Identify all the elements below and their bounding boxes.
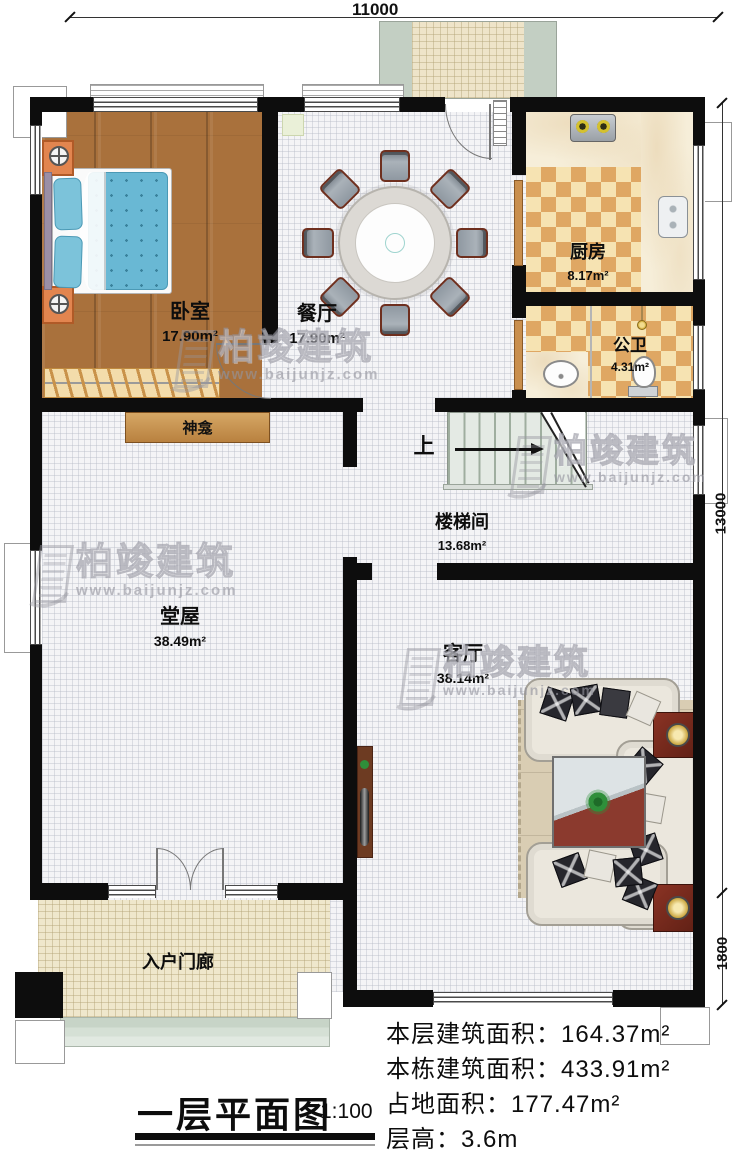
wall <box>512 292 705 306</box>
sofa-pillow <box>613 857 644 888</box>
ceiling-lamp-icon <box>641 306 643 321</box>
right-dimension-line <box>722 103 723 1005</box>
kitchen-window <box>693 145 705 280</box>
tv-icon <box>360 788 369 846</box>
right-dimension-label-1800: 1800 <box>714 937 731 970</box>
table-lamp-icon <box>666 896 690 920</box>
living-label: 客厅38.14m² <box>437 637 489 689</box>
dining-chair <box>380 150 410 182</box>
dining-label: 餐厅17.90m² <box>289 297 345 349</box>
wall <box>30 195 42 550</box>
wardrobe <box>44 368 220 398</box>
porch-column <box>15 972 63 1018</box>
shrine-console: 神龛 <box>125 412 270 443</box>
plan-scale: 1:100 <box>320 1100 373 1124</box>
porch-sill <box>297 972 332 1019</box>
entry-mat <box>282 114 304 136</box>
top-dimension-label: 11000 <box>352 0 398 20</box>
porch-sill <box>15 1020 65 1064</box>
dining-chair <box>456 228 488 258</box>
dining-window <box>304 97 400 112</box>
wall <box>400 97 445 112</box>
wall <box>693 97 705 145</box>
wall <box>437 563 705 580</box>
entry-door-leaf <box>156 848 158 890</box>
shrine-label: 神龛 <box>182 417 212 438</box>
sofa-pillow <box>583 849 616 882</box>
wall <box>30 883 108 900</box>
bathroom-divider <box>590 306 592 398</box>
rear-door-track <box>493 100 507 146</box>
wall <box>512 97 526 175</box>
wall <box>512 306 526 318</box>
dining-chair <box>302 228 334 258</box>
stat-building-area: 本栋建筑面积：433.91m² <box>386 1049 670 1084</box>
bed-sheet-fold <box>80 172 106 290</box>
window-sill <box>4 543 33 653</box>
right-dimension-label-13000: 13000 <box>712 493 729 535</box>
ceiling-lamp-icon <box>637 320 647 330</box>
plant-icon <box>584 788 612 816</box>
stair-landing-edge <box>443 484 593 490</box>
title-underline-thin <box>135 1144 375 1146</box>
entry-steps <box>60 1017 330 1047</box>
wall <box>435 398 705 412</box>
wall <box>343 398 357 467</box>
bed-headboard <box>44 172 52 290</box>
title-underline-thick <box>135 1133 375 1140</box>
bedroom-window <box>93 97 258 112</box>
plan-title: 一层平面图 <box>137 1086 332 1138</box>
hall-label: 堂屋38.49m² <box>154 600 206 652</box>
entry-porch-label: 入户门廊 <box>142 948 214 974</box>
wall <box>613 990 705 1007</box>
rear-door-leaf <box>489 104 491 160</box>
wall <box>510 97 705 112</box>
hall-side-window <box>30 550 42 645</box>
dining-chair <box>380 304 410 336</box>
stairwell-label: 楼梯间13.68m² <box>435 508 489 555</box>
bathroom-door-leaf <box>514 320 523 390</box>
stat-footprint-area: 占地面积：177.47m² <box>386 1084 620 1119</box>
burner-icon <box>597 120 610 133</box>
wall <box>343 557 357 1007</box>
bedroom-side-window <box>30 125 42 195</box>
floor-plan: 11000 13000 1800 <box>0 0 750 1150</box>
table-lamp-icon <box>666 723 690 747</box>
stairwell-window <box>693 425 705 495</box>
rear-porch-floor <box>412 22 524 98</box>
bathroom-label: 公卫4.31m² <box>611 331 649 376</box>
kitchen-label: 厨房8.17m² <box>567 238 608 285</box>
pillow <box>53 236 83 289</box>
wall <box>30 97 42 125</box>
stat-floor-height: 层高：3.6m <box>386 1119 518 1150</box>
wall <box>357 563 372 580</box>
kitchen-door-leaf <box>514 180 523 266</box>
wall <box>512 390 526 398</box>
wall <box>30 645 42 900</box>
bathroom-sink-icon <box>543 360 579 388</box>
wall <box>30 398 363 412</box>
dining-table-center <box>385 233 405 253</box>
burner-icon <box>576 120 589 133</box>
living-window <box>433 992 613 1005</box>
entry-sidelight <box>108 885 156 898</box>
window-sill <box>704 122 732 202</box>
stat-floor-area: 本层建筑面积：164.37m² <box>386 1014 670 1049</box>
plant-icon <box>360 760 369 769</box>
bedroom-door-leaf <box>216 343 270 345</box>
bedroom-label: 卧室17.90m² <box>162 295 218 347</box>
pillow <box>53 178 83 231</box>
stair-direction-arrow-icon <box>531 443 544 455</box>
stairs-up-label: 上 <box>414 430 435 460</box>
stair-direction-line <box>455 448 531 451</box>
bathroom-window <box>693 325 705 390</box>
entry-sidelight <box>225 885 278 898</box>
nightstand-lamp-icon <box>49 294 69 314</box>
kitchen-sink-icon <box>658 196 688 238</box>
nightstand-lamp-icon <box>49 146 69 166</box>
window-sill <box>704 418 728 504</box>
wall <box>262 97 278 343</box>
sofa-pillow <box>570 684 602 716</box>
entry-door-leaf <box>222 848 224 890</box>
